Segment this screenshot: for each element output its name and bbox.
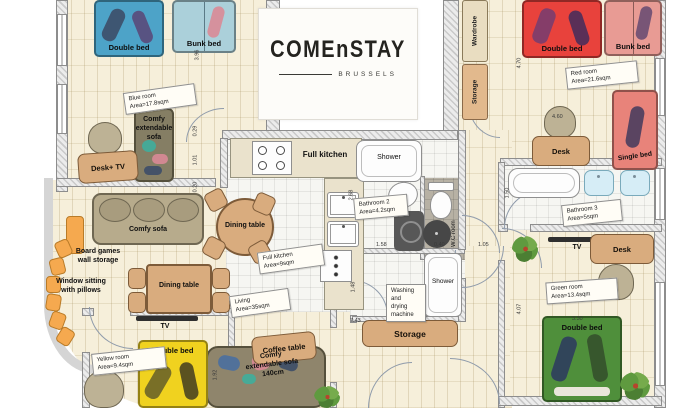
bathroom-sink — [620, 170, 650, 196]
blue-bunk-bed: Bunk bed — [172, 0, 236, 53]
window — [655, 282, 665, 386]
bed-label: Double bed — [96, 43, 162, 52]
wardrobe: Wardrobe — [462, 0, 488, 62]
window-pillow — [45, 293, 62, 312]
storage-label: Storage — [463, 65, 487, 119]
floor-plan: COMEnSTAY BRUSSELS Double bed Bunk bed 3… — [0, 0, 680, 408]
logo-title: COMEnSTAY — [259, 37, 417, 65]
storage-cabinet: Storage — [362, 320, 458, 347]
logo-subtitle-row: BRUSSELS — [279, 71, 397, 78]
dimension: 0.40 — [434, 242, 445, 248]
person-figure — [586, 333, 609, 383]
person-figure — [100, 6, 128, 43]
dimension: 1.50 — [504, 188, 510, 199]
dining-chair — [212, 292, 230, 313]
dimension: 7.43 — [350, 318, 361, 324]
desk-chair — [544, 106, 576, 138]
dimension: 1.92 — [212, 370, 218, 381]
desk: Desk — [590, 234, 654, 264]
dining-chair — [128, 292, 146, 313]
person-figure — [178, 361, 200, 401]
dimension: 1.05 — [478, 242, 489, 248]
person-figure — [567, 9, 591, 48]
kitchen-sink — [327, 221, 359, 247]
wc-room-label: W.C room — [448, 212, 460, 256]
tv-screen — [136, 316, 198, 321]
dimension: 1.58 — [376, 242, 387, 248]
single-bed: Single bed — [612, 90, 658, 170]
bed-label: Bunk bed — [606, 42, 660, 51]
plant — [620, 372, 650, 400]
person-figure — [635, 5, 654, 41]
desk-chair — [88, 122, 122, 154]
window — [57, 14, 67, 66]
plant — [512, 236, 538, 262]
wardrobe-label: Wardrobe — [463, 1, 487, 61]
logo-line — [279, 74, 332, 75]
desk-chair — [84, 370, 124, 408]
dimension: 4.60 — [552, 114, 563, 120]
bathtub — [508, 168, 580, 198]
comfy-sofa-label: Comfy sofa — [112, 226, 184, 235]
pink-bunk-bed: Bunk bed — [604, 0, 662, 56]
bed-label: Bunk bed — [174, 39, 234, 48]
person-figure — [624, 105, 645, 149]
washing-machine — [394, 211, 424, 251]
dining-chair — [128, 268, 146, 289]
wall — [498, 260, 505, 408]
freezer-icon — [320, 250, 352, 282]
green-double-bed: Double bed — [542, 316, 622, 402]
sofa-cushion — [167, 198, 199, 222]
person-figure — [530, 6, 557, 45]
dimension: 3.96 — [194, 50, 200, 61]
blue-sofa-label: Comfy extendable sofa — [126, 116, 182, 142]
dimension: 1.48 — [350, 282, 356, 293]
person-figure — [206, 5, 226, 39]
dining-chair — [212, 268, 230, 289]
bed-label: Double bed — [524, 44, 600, 53]
shower-label: Shower — [360, 154, 418, 163]
dining-table-label: Dining table — [214, 222, 276, 231]
wc-room-label-wrap: W.C room — [448, 212, 460, 256]
bed-pillow — [554, 387, 610, 396]
stove — [252, 141, 292, 175]
shower-label: Shower — [425, 278, 461, 286]
dimension: 4.07 — [516, 304, 522, 315]
person-figure — [144, 166, 162, 175]
dining-table-label: Dining table — [148, 282, 210, 291]
window — [57, 84, 67, 134]
toilet — [428, 182, 454, 191]
comfy-sofa — [92, 193, 204, 245]
dimension: 1.01 — [192, 155, 198, 166]
dimension: 0.20 — [192, 182, 198, 193]
sofa-cushion — [99, 198, 131, 222]
person-figure — [130, 9, 155, 45]
red-double-bed: Double bed — [522, 0, 602, 58]
tv-label: TV — [150, 323, 180, 332]
bathroom-sink — [584, 170, 614, 196]
desk: Desk — [532, 136, 590, 166]
desk-tv: Desk+ TV — [77, 150, 139, 184]
plant — [314, 386, 340, 408]
window — [655, 168, 665, 220]
full-kitchen-label: Full kitchen — [294, 150, 356, 160]
bathroom2-label: Bathroom 2 Area=4.2sqm — [353, 194, 409, 221]
dimension: 0.29 — [192, 126, 198, 137]
storage-closet: Storage — [462, 64, 488, 120]
person-figure — [549, 335, 578, 384]
dimension: 4.70 — [516, 58, 522, 69]
person-figure — [152, 154, 168, 164]
wall — [530, 224, 662, 232]
tv-label: TV — [562, 244, 592, 253]
logo-card: COMEnSTAY BRUSSELS — [258, 8, 418, 120]
dimension: 3.30 — [572, 316, 583, 322]
blue-double-bed: Double bed — [94, 0, 164, 57]
sofa-cushion — [133, 198, 165, 222]
wall — [220, 138, 228, 188]
logo-subtitle: BRUSSELS — [338, 71, 397, 78]
window-sitting-label: Window sitting with pillows — [44, 278, 118, 296]
wall — [443, 0, 459, 140]
bed-label: Double bed — [544, 323, 620, 332]
board-games-label: Board games wall storage — [62, 248, 134, 266]
washing-machine-label: Washing and drying machine — [386, 284, 426, 322]
bed-label: Single bed — [614, 150, 657, 163]
